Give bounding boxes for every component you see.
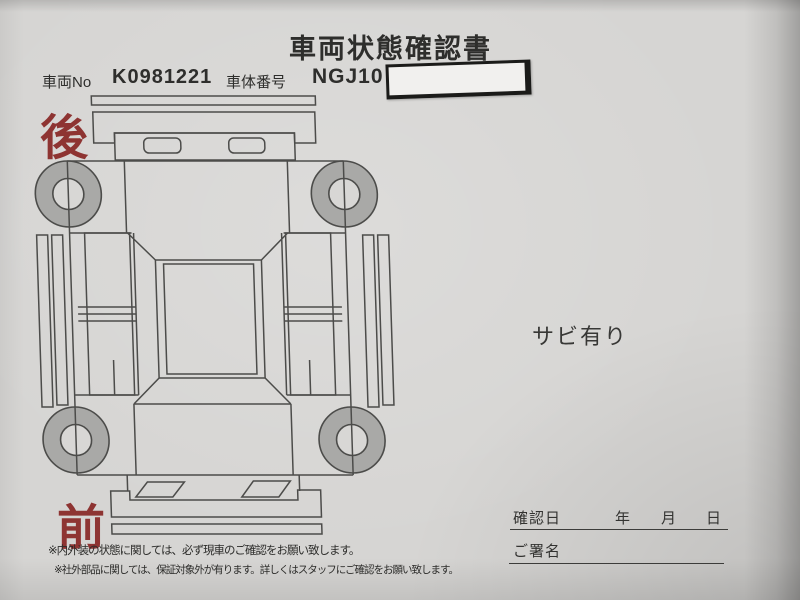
masking-tape	[385, 59, 531, 99]
rear-deck-lines	[124, 161, 289, 233]
day-label: 日	[706, 507, 722, 528]
month-label: 月	[661, 507, 677, 528]
date-underline	[510, 529, 728, 530]
page-title: 車両状態確認書	[289, 27, 492, 66]
side-sill-left-outer	[37, 235, 53, 407]
vehicle-no-value: K0981221	[112, 66, 212, 89]
headlight-right	[241, 481, 291, 497]
signature-underline	[509, 563, 724, 564]
headlight-left	[135, 482, 184, 497]
year-label: 年	[615, 507, 631, 528]
roof-inner	[164, 264, 257, 374]
front-bumper	[111, 490, 322, 517]
side-sill-left-inner	[52, 235, 68, 405]
side-sill-right-inner	[363, 235, 379, 407]
car-diagram	[28, 88, 400, 550]
body-number-value: NGJ10	[312, 65, 384, 89]
tail-lamp-right	[229, 138, 265, 153]
hood-sides	[134, 404, 293, 475]
confirm-date-label: 確認日	[513, 507, 561, 528]
rear-window-diagonals	[128, 233, 289, 260]
windshield-diagonals	[133, 378, 291, 404]
front-connectors	[127, 475, 300, 491]
roof-outer	[155, 260, 265, 378]
rear-panel	[114, 133, 295, 160]
footnote-1: ※内外装の状態に関しては、必ず現車のご確認をお願い致します。	[48, 542, 359, 558]
front-bumper-bottom-strip	[112, 524, 322, 534]
rust-note: サビ有り	[532, 319, 628, 351]
side-sill-right-outer	[378, 235, 394, 405]
footnote-2: ※社外部品に関しては、保証対象外が有ります。詳しくはスタッフにご確認をお願い致し…	[54, 562, 458, 577]
rear-bumper-top-strip	[91, 96, 315, 105]
tail-lamp-left	[144, 138, 181, 153]
photographed-document: { "document": { "title": "車両状態確認書", "veh…	[0, 0, 800, 600]
rear-bumper	[93, 112, 316, 143]
signature-label: ご署名	[513, 540, 561, 561]
